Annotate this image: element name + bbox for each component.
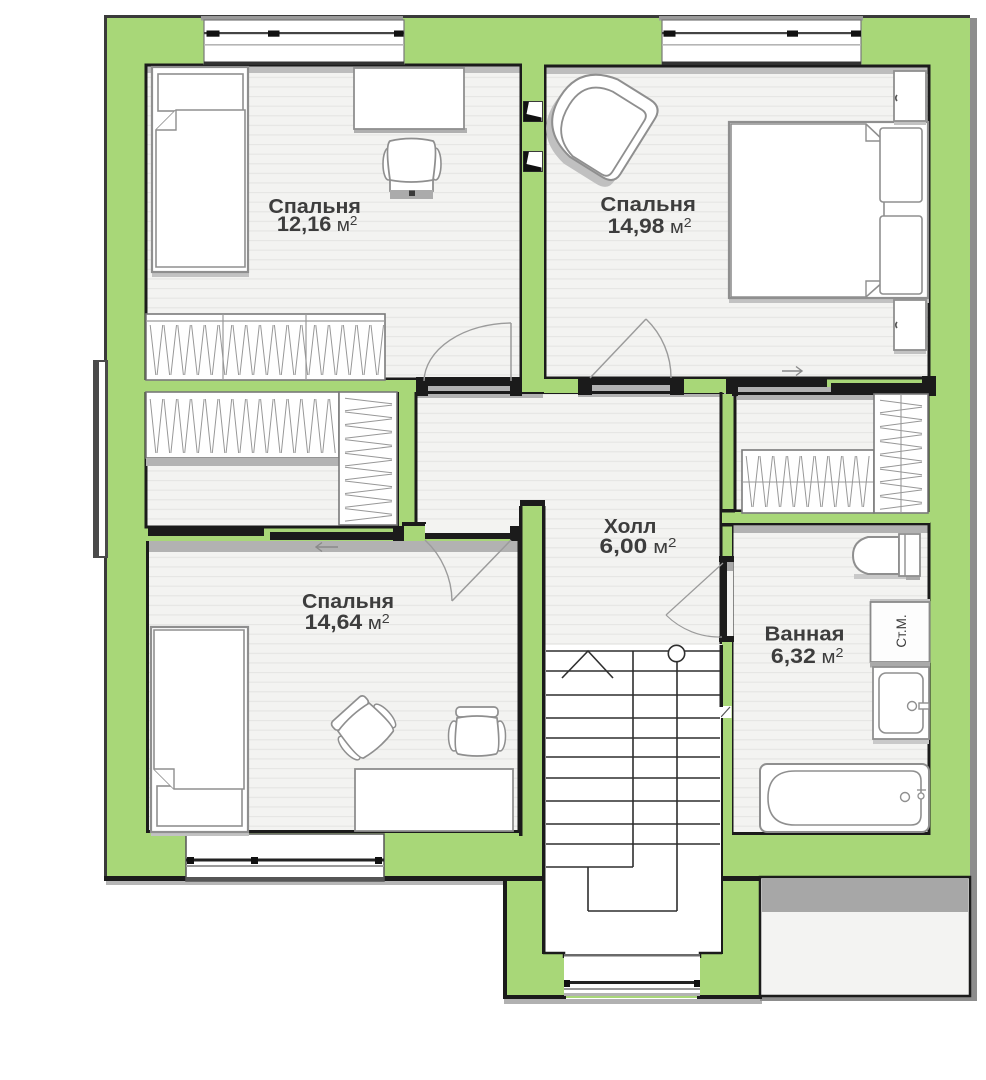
svg-text:6,00 м2: 6,00 м2 — [600, 535, 677, 558]
svg-text:14,64 м2: 14,64 м2 — [305, 611, 390, 634]
svg-text:14,98 м2: 14,98 м2 — [608, 215, 692, 238]
svg-text:Ст.М.: Ст.М. — [894, 614, 909, 647]
svg-text:Ванная: Ванная — [765, 623, 845, 646]
svg-text:12,16 м2: 12,16 м2 — [277, 213, 358, 236]
svg-text:6,32 м2: 6,32 м2 — [771, 645, 844, 668]
svg-text:Спальня: Спальня — [302, 590, 394, 613]
svg-text:Спальня: Спальня — [600, 193, 696, 216]
